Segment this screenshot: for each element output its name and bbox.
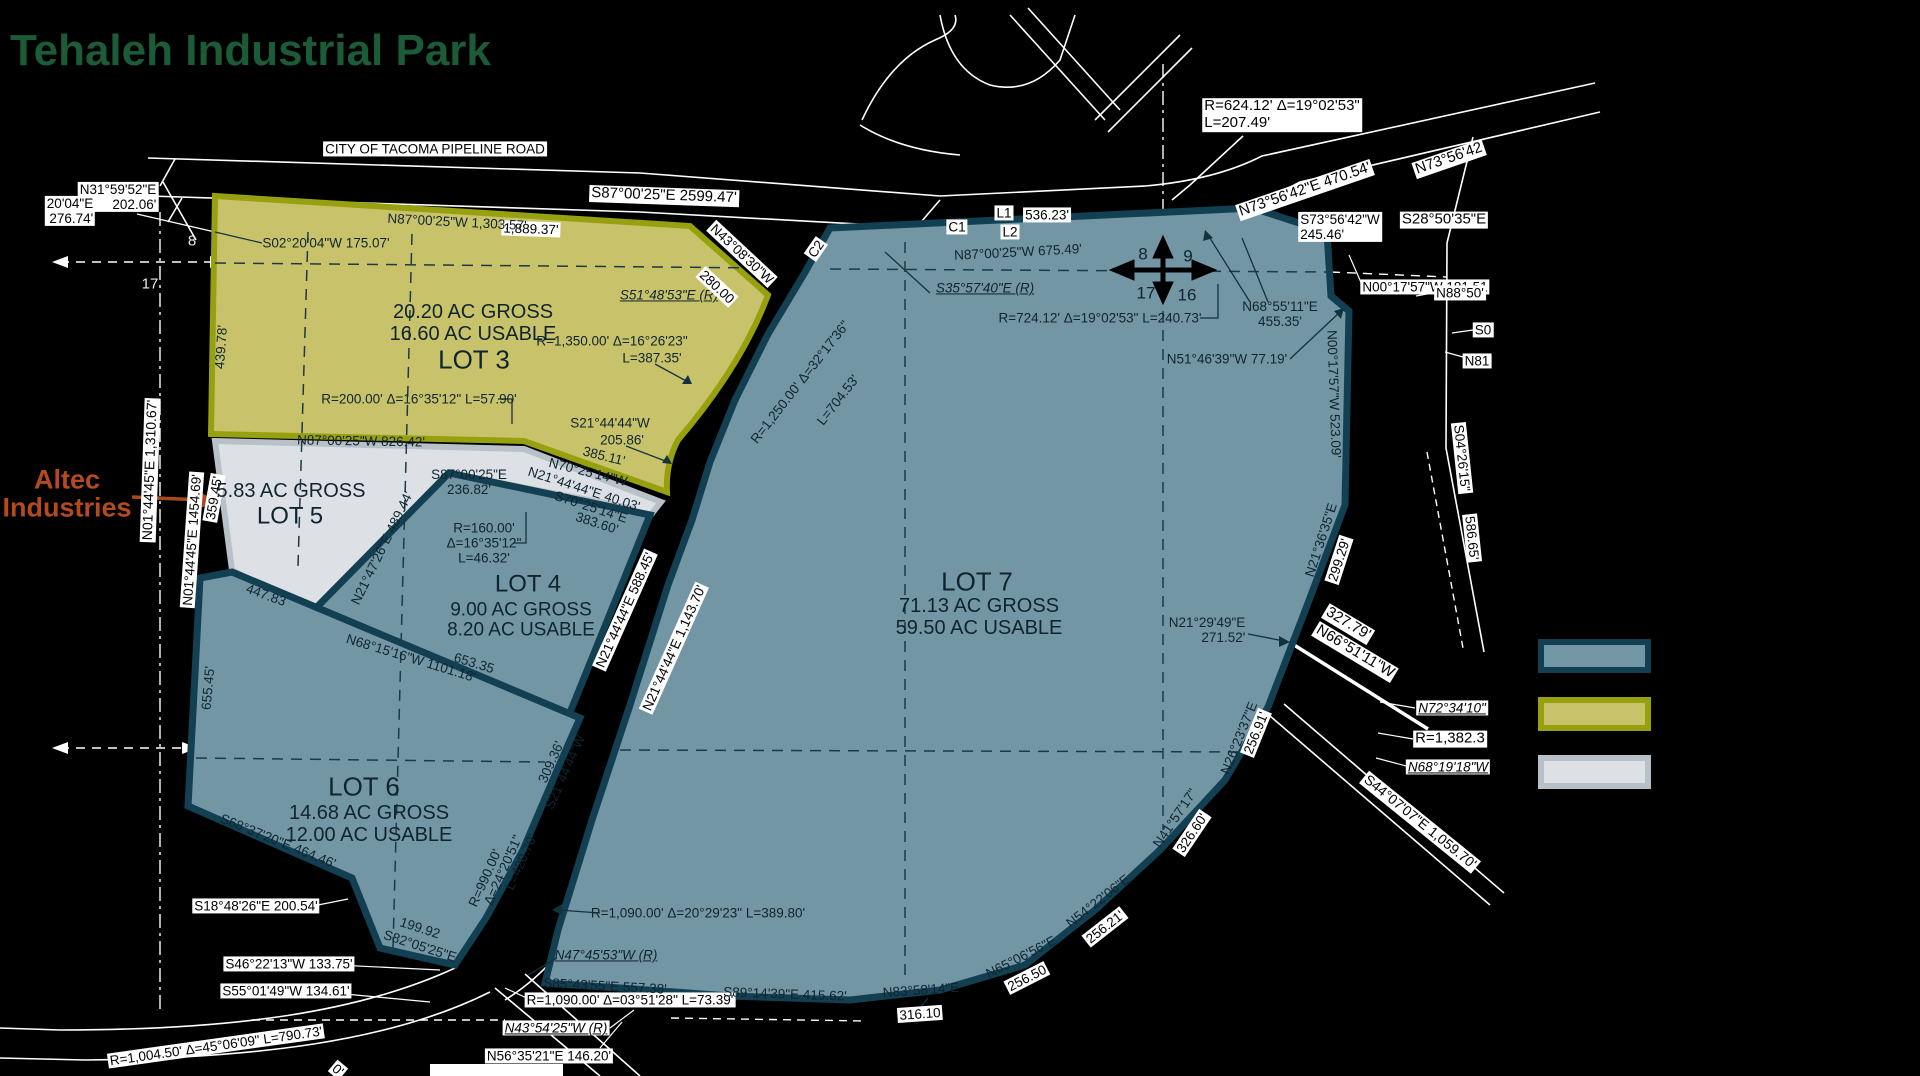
survey-label: 9: [1183, 246, 1192, 265]
survey-label: N68°55'11"E 455.35': [1242, 299, 1318, 329]
lot4-title: LOT 4: [495, 572, 561, 599]
lot7-gross: 71.13 AC GROSS: [899, 595, 1059, 617]
survey-label: R=724.12' Δ=19°02'53" L=240.73': [999, 310, 1202, 325]
survey-label: 205.86': [600, 432, 644, 447]
survey-label: 17: [142, 277, 159, 294]
survey-label: R=200.00' Δ=16°35'12" L=57.90': [321, 391, 516, 406]
survey-label: N43°54'25"W (R): [503, 1020, 610, 1035]
survey-label: R=1,090.00' Δ=20°29'23" L=389.80': [591, 905, 805, 920]
survey-label: 16: [1178, 285, 1197, 304]
survey-label: S18°48'26"E 200.54': [192, 898, 319, 913]
survey-label: N72°34'10": [1416, 700, 1488, 715]
survey-label: S28°50'35"E: [1400, 212, 1488, 229]
survey-label: R=1,350.00' Δ=16°26'23": [536, 333, 687, 348]
lot4-gross: 9.00 AC GROSS: [450, 599, 592, 620]
survey-label: 20'04"E 276.74': [45, 196, 95, 226]
survey-label: S73°56'42"W 245.46': [1298, 212, 1382, 242]
lot3-usable: 16.60 AC USABLE: [390, 323, 557, 345]
survey-label: N47°45'53"W (R): [555, 947, 658, 962]
survey-label: N68°19'18"W: [1406, 759, 1490, 774]
survey-label: L=387.35': [622, 350, 681, 365]
lot5-gross: 5.83 AC GROSS: [217, 480, 366, 502]
plat-map-page: Tehaleh Industrial Park CITY OF TACOMA P…: [0, 0, 1920, 1076]
survey-label: L2: [1000, 224, 1019, 239]
altec-industries-callout: Altec Industries: [2, 466, 131, 521]
road-name: CITY OF TACOMA PIPELINE ROAD: [323, 141, 547, 156]
survey-label: S02°20'04"W 175.07': [262, 235, 389, 250]
lot5-title: LOT 5: [257, 504, 323, 531]
lot6-gross: 14.68 AC GROSS: [289, 802, 449, 824]
survey-label: 8: [1138, 244, 1147, 263]
survey-label: 586.65': [1462, 513, 1482, 562]
survey-label: R=160.00' Δ=16°35'12" L=46.32': [447, 520, 522, 565]
survey-label: N00°17'57"W 523.09': [1324, 330, 1344, 458]
lot6-title: LOT 6: [328, 772, 400, 801]
survey-label: R=624.12' Δ=19°02'53" L=207.49': [1202, 98, 1362, 132]
label-layer: CITY OF TACOMA PIPELINE ROADN31°59'52"E …: [0, 0, 1920, 1076]
survey-label: N73°56'42: [1411, 139, 1486, 179]
lot7-title: LOT 7: [941, 567, 1013, 596]
survey-label: N21°47'26"E 489.44': [348, 489, 416, 607]
survey-label: S89°14'39"E 415.62': [723, 984, 847, 1003]
survey-label: N01°44'45"E 1454.69': [180, 472, 205, 608]
survey-label: 8: [188, 234, 196, 251]
survey-label: C2: [804, 236, 829, 262]
survey-label: S87°00'25"E 2599.47': [589, 185, 739, 207]
survey-label: 439.78': [212, 325, 230, 370]
lot3-title: LOT 3: [438, 345, 510, 374]
survey-label: R=1,004.50' Δ=45°06'09" L=790.73': [107, 1023, 325, 1068]
survey-label: S51°48'53"E (R): [620, 287, 718, 302]
survey-label: S55°01'49"W 134.61': [220, 983, 351, 998]
survey-label: L1: [994, 205, 1013, 220]
survey-label: N51°46'39"W 77.19': [1167, 351, 1287, 366]
survey-label: N87°00'25"W 675.49': [954, 241, 1083, 263]
survey-label: S46°22'13"W 133.75': [223, 956, 354, 971]
survey-label: 0': [328, 1060, 349, 1076]
survey-label: L=704.53': [814, 372, 862, 428]
survey-label: 316.10: [897, 1005, 943, 1023]
survey-label: C1: [946, 219, 967, 234]
survey-label: R=1,382.3: [1413, 731, 1487, 748]
survey-label: N88°50': [1434, 285, 1486, 300]
lot7-usable: 59.50 AC USABLE: [896, 617, 1063, 639]
survey-label: N81: [1463, 353, 1492, 368]
survey-label: N21°44'44"E 1,143.70': [639, 581, 710, 715]
survey-label: S04°26'15": [1451, 422, 1473, 494]
survey-label: 299.29': [1324, 535, 1353, 585]
survey-label: S35°57'40"E (R): [936, 280, 1034, 295]
survey-label: 17: [1137, 283, 1156, 302]
survey-label: S21°44'44"W: [570, 415, 650, 430]
survey-label: N01°44'45"E 1,310.67': [140, 398, 161, 543]
survey-label: S0: [1473, 322, 1494, 337]
lot6-usable: 12.00 AC USABLE: [286, 824, 453, 846]
survey-label: N87°00'25"W 826.42': [297, 432, 425, 449]
lot4-usable: 8.20 AC USABLE: [447, 619, 595, 640]
survey-label: 655.45': [199, 665, 218, 710]
survey-label: N21°44'44"E 588.45': [592, 548, 658, 671]
survey-label: S44°07'07"E 1,059.70': [1359, 771, 1481, 874]
survey-label: 447.83: [244, 581, 288, 609]
survey-label: N83°58'14"E: [882, 980, 959, 1000]
survey-label: 536.23': [1023, 207, 1071, 222]
survey-label: N87°00'25"W 1,303.57': [387, 211, 527, 233]
survey-label: S87°00'25"E 236.82': [431, 467, 507, 497]
survey-label: R=1,250.00' Δ=32°17'36": [747, 318, 852, 446]
lot3-gross: 20.20 AC GROSS: [393, 301, 553, 323]
survey-label: N56°35'21"E 146.20': [485, 1048, 613, 1063]
survey-label: N21°29'49"E 271.52': [1169, 615, 1246, 645]
